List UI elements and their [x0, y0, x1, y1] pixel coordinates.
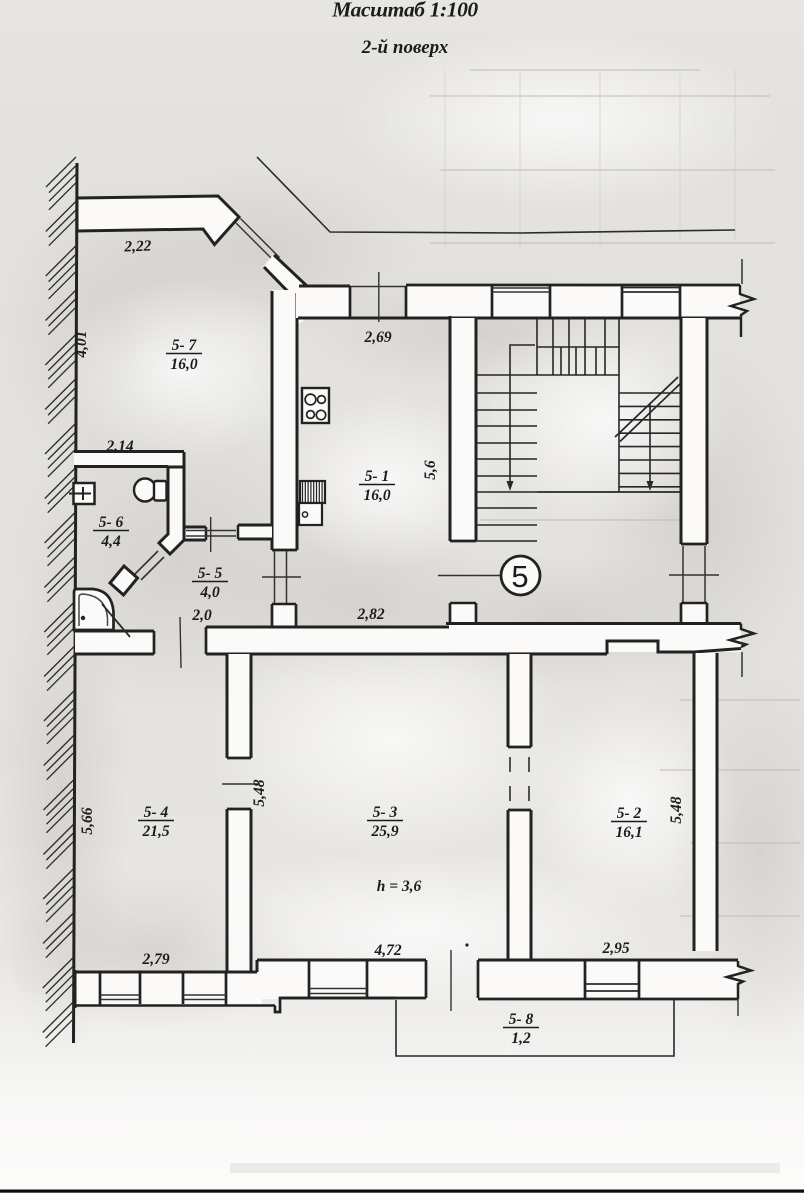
svg-text:16,1: 16,1 — [615, 824, 642, 841]
svg-text:2,0: 2,0 — [191, 607, 212, 624]
svg-text:h = 3,6: h = 3,6 — [377, 878, 422, 895]
svg-text:2-й поверх: 2-й поверх — [361, 37, 449, 58]
svg-text:5- 8: 5- 8 — [509, 1011, 534, 1028]
svg-text:16,0: 16,0 — [363, 487, 390, 504]
svg-text:2,69: 2,69 — [363, 329, 391, 346]
svg-text:5,6: 5,6 — [422, 460, 439, 480]
svg-text:5,66: 5,66 — [79, 807, 96, 834]
svg-text:2,82: 2,82 — [356, 606, 384, 623]
svg-text:2,14: 2,14 — [105, 438, 133, 455]
svg-text:5,48: 5,48 — [668, 796, 685, 823]
svg-text:4,0: 4,0 — [199, 584, 220, 601]
svg-text:5- 4: 5- 4 — [144, 804, 169, 821]
svg-text:5- 6: 5- 6 — [99, 514, 124, 531]
svg-text:2,22: 2,22 — [123, 238, 152, 256]
svg-text:5- 3: 5- 3 — [373, 804, 398, 821]
svg-text:5- 2: 5- 2 — [617, 805, 642, 822]
svg-text:25,9: 25,9 — [370, 823, 398, 840]
svg-text:2,79: 2,79 — [141, 951, 169, 968]
svg-text:5- 5: 5- 5 — [198, 565, 223, 582]
svg-text:2,95: 2,95 — [601, 940, 629, 957]
svg-text:4,72: 4,72 — [373, 942, 401, 959]
svg-text:1,2: 1,2 — [511, 1030, 531, 1047]
svg-text:21,5: 21,5 — [141, 823, 169, 840]
svg-text:4,4: 4,4 — [100, 533, 121, 550]
svg-text:5- 7: 5- 7 — [172, 337, 198, 354]
svg-text:5- 1: 5- 1 — [365, 468, 390, 485]
svg-text:16,0: 16,0 — [170, 356, 197, 373]
svg-text:5,48: 5,48 — [251, 779, 268, 806]
svg-text:Масштаб 1:100: Масштаб 1:100 — [331, 0, 478, 22]
svg-text:4,01: 4,01 — [73, 330, 90, 358]
svg-text:5: 5 — [511, 559, 528, 594]
